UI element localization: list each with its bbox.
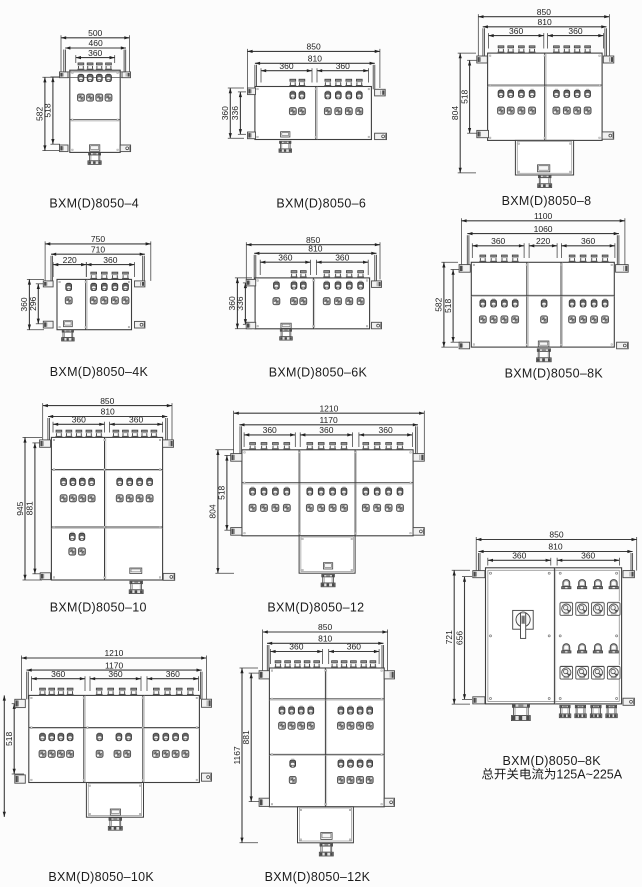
- svg-text:360: 360: [51, 669, 65, 679]
- svg-text:518: 518: [43, 103, 53, 117]
- svg-text:BXM(D)8050–4K: BXM(D)8050–4K: [50, 365, 149, 379]
- svg-text:360: 360: [166, 669, 180, 679]
- svg-text:810: 810: [548, 542, 562, 552]
- svg-text:810: 810: [318, 634, 332, 644]
- svg-text:BXM(D)8050–4: BXM(D)8050–4: [49, 196, 139, 210]
- svg-text:881: 881: [25, 501, 35, 515]
- svg-text:360: 360: [512, 551, 526, 561]
- svg-text:360: 360: [336, 61, 350, 71]
- svg-text:500: 500: [88, 28, 102, 38]
- svg-text:850: 850: [100, 396, 114, 406]
- svg-text:804: 804: [208, 504, 218, 518]
- svg-text:360: 360: [220, 106, 230, 120]
- svg-text:360: 360: [72, 415, 86, 425]
- svg-text:518: 518: [443, 299, 453, 313]
- svg-text:1060: 1060: [534, 224, 553, 234]
- svg-text:518: 518: [4, 732, 14, 746]
- svg-text:360: 360: [581, 551, 595, 561]
- svg-text:360: 360: [278, 252, 292, 262]
- svg-text:BXM(D)8050–8K: BXM(D)8050–8K: [503, 754, 602, 768]
- svg-text:BXM(D)8050–10: BXM(D)8050–10: [50, 601, 147, 615]
- svg-text:336: 336: [235, 296, 245, 310]
- svg-text:220: 220: [536, 236, 550, 246]
- svg-text:360: 360: [108, 669, 122, 679]
- svg-text:810: 810: [101, 407, 115, 417]
- svg-text:360: 360: [263, 425, 277, 435]
- svg-text:360: 360: [319, 425, 333, 435]
- svg-text:220: 220: [63, 255, 77, 265]
- svg-text:360: 360: [379, 425, 393, 435]
- svg-text:945: 945: [15, 501, 25, 515]
- svg-text:360: 360: [129, 415, 143, 425]
- svg-text:750: 750: [91, 234, 105, 244]
- svg-text:1210: 1210: [319, 403, 338, 413]
- svg-text:360: 360: [491, 236, 505, 246]
- svg-text:881: 881: [241, 730, 251, 744]
- svg-text:360: 360: [103, 255, 117, 265]
- svg-text:360: 360: [289, 642, 303, 652]
- svg-text:BXM(D)8050–6: BXM(D)8050–6: [276, 196, 366, 210]
- svg-text:360: 360: [581, 236, 595, 246]
- svg-text:460: 460: [89, 38, 103, 48]
- svg-text:710: 710: [91, 244, 105, 254]
- svg-text:360: 360: [88, 48, 102, 58]
- svg-text:360: 360: [509, 26, 523, 36]
- svg-text:125A~225A: 125A~225A: [556, 768, 622, 782]
- svg-text:810: 810: [308, 244, 322, 254]
- svg-text:810: 810: [538, 17, 552, 27]
- svg-text:360: 360: [347, 642, 361, 652]
- svg-text:850: 850: [537, 7, 551, 17]
- svg-text:1167: 1167: [232, 746, 242, 765]
- svg-text:336: 336: [230, 106, 240, 120]
- svg-text:810: 810: [308, 54, 322, 64]
- svg-text:1100: 1100: [534, 211, 553, 221]
- svg-text:BXM(D)8050–8: BXM(D)8050–8: [502, 194, 592, 208]
- svg-text:296: 296: [28, 296, 38, 310]
- svg-text:360: 360: [279, 61, 293, 71]
- svg-text:850: 850: [307, 42, 321, 52]
- svg-text:850: 850: [549, 530, 563, 540]
- svg-text:BXM(D)8050–10K: BXM(D)8050–10K: [48, 870, 154, 884]
- svg-text:804: 804: [450, 106, 460, 120]
- svg-text:850: 850: [318, 622, 332, 632]
- svg-text:1170: 1170: [319, 415, 338, 425]
- svg-text:360: 360: [568, 26, 582, 36]
- svg-text:518: 518: [217, 485, 227, 499]
- svg-text:721: 721: [444, 630, 454, 644]
- svg-text:518: 518: [459, 89, 469, 103]
- svg-text:BXM(D)8050–6K: BXM(D)8050–6K: [269, 366, 368, 380]
- svg-text:1210: 1210: [104, 648, 123, 658]
- svg-text:656: 656: [454, 631, 464, 645]
- svg-text:360: 360: [335, 252, 349, 262]
- svg-text:BXM(D)8050–8K: BXM(D)8050–8K: [505, 367, 604, 381]
- svg-text:BXM(D)8050–12K: BXM(D)8050–12K: [265, 870, 371, 884]
- svg-text:BXM(D)8050–12: BXM(D)8050–12: [267, 601, 364, 615]
